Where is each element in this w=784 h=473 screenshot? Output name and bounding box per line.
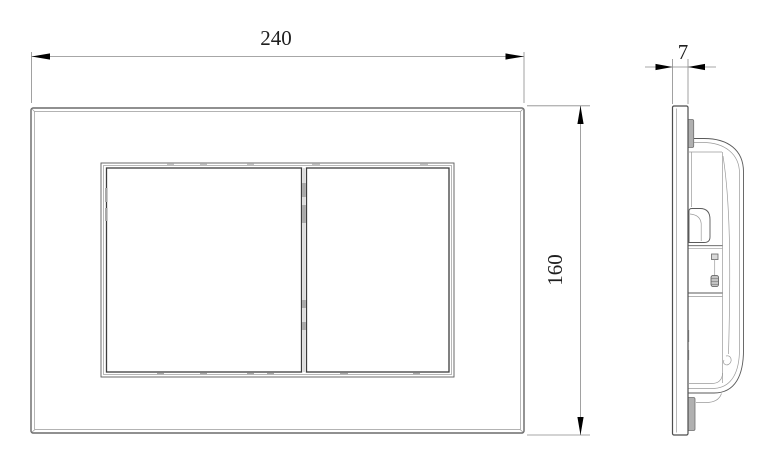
dim-arrow-down-icon bbox=[577, 417, 583, 435]
compartment-bottom-line bbox=[689, 373, 723, 384]
dim-arrow-left-icon bbox=[32, 53, 51, 59]
frame-dash-mark bbox=[200, 163, 207, 165]
frame-dash-mark bbox=[247, 372, 254, 374]
screw-body bbox=[711, 276, 719, 287]
screw-head bbox=[712, 254, 719, 260]
divider-clip-mark bbox=[302, 183, 305, 197]
dimension-width: 240 bbox=[32, 26, 525, 103]
plate-side-profile bbox=[673, 106, 689, 435]
frame-dash-mark bbox=[312, 163, 320, 165]
technical-drawing: 240 160 bbox=[0, 0, 784, 473]
frame-dash-mark bbox=[167, 163, 174, 165]
hook-detail bbox=[724, 356, 732, 365]
frame-clip-mark bbox=[105, 208, 108, 221]
dim-arrow-right-icon bbox=[656, 64, 673, 70]
dim-arrow-left-icon bbox=[688, 64, 705, 70]
divider-clip-mark bbox=[302, 322, 305, 330]
frame-dash-mark bbox=[420, 163, 428, 165]
mounting-tab-bottom bbox=[688, 398, 696, 431]
dimension-height: 160 bbox=[527, 106, 590, 435]
side-view bbox=[673, 106, 744, 435]
dim-arrow-right-icon bbox=[506, 53, 525, 59]
right-flush-button bbox=[307, 168, 450, 372]
dim-thickness-label: 7 bbox=[678, 40, 689, 64]
left-flush-button bbox=[107, 168, 302, 372]
divider-clip-mark bbox=[302, 205, 305, 223]
housing-flange-line bbox=[696, 394, 722, 403]
frame-dash-mark bbox=[157, 372, 164, 374]
inner-wall-curve bbox=[723, 156, 730, 354]
frame-dash-mark bbox=[247, 163, 254, 165]
dim-arrow-up-icon bbox=[577, 106, 583, 124]
dim-width-label: 240 bbox=[260, 26, 292, 50]
frame-dash-mark bbox=[200, 372, 207, 374]
frame-dash-mark bbox=[413, 372, 420, 374]
dim-height-label: 160 bbox=[543, 254, 567, 286]
frame-dash-mark bbox=[267, 372, 274, 374]
cistern-housing-outer bbox=[688, 139, 744, 394]
front-view bbox=[31, 108, 524, 433]
cistern-housing-inner bbox=[688, 143, 740, 389]
dimension-thickness: 7 bbox=[645, 40, 716, 104]
button-side-profile bbox=[689, 209, 710, 243]
drawing-canvas: 240 160 bbox=[0, 0, 784, 473]
button-side-lip bbox=[690, 214, 701, 241]
divider-clip-mark bbox=[302, 300, 305, 308]
frame-dash-mark bbox=[340, 372, 348, 374]
frame-clip-mark bbox=[105, 188, 108, 202]
